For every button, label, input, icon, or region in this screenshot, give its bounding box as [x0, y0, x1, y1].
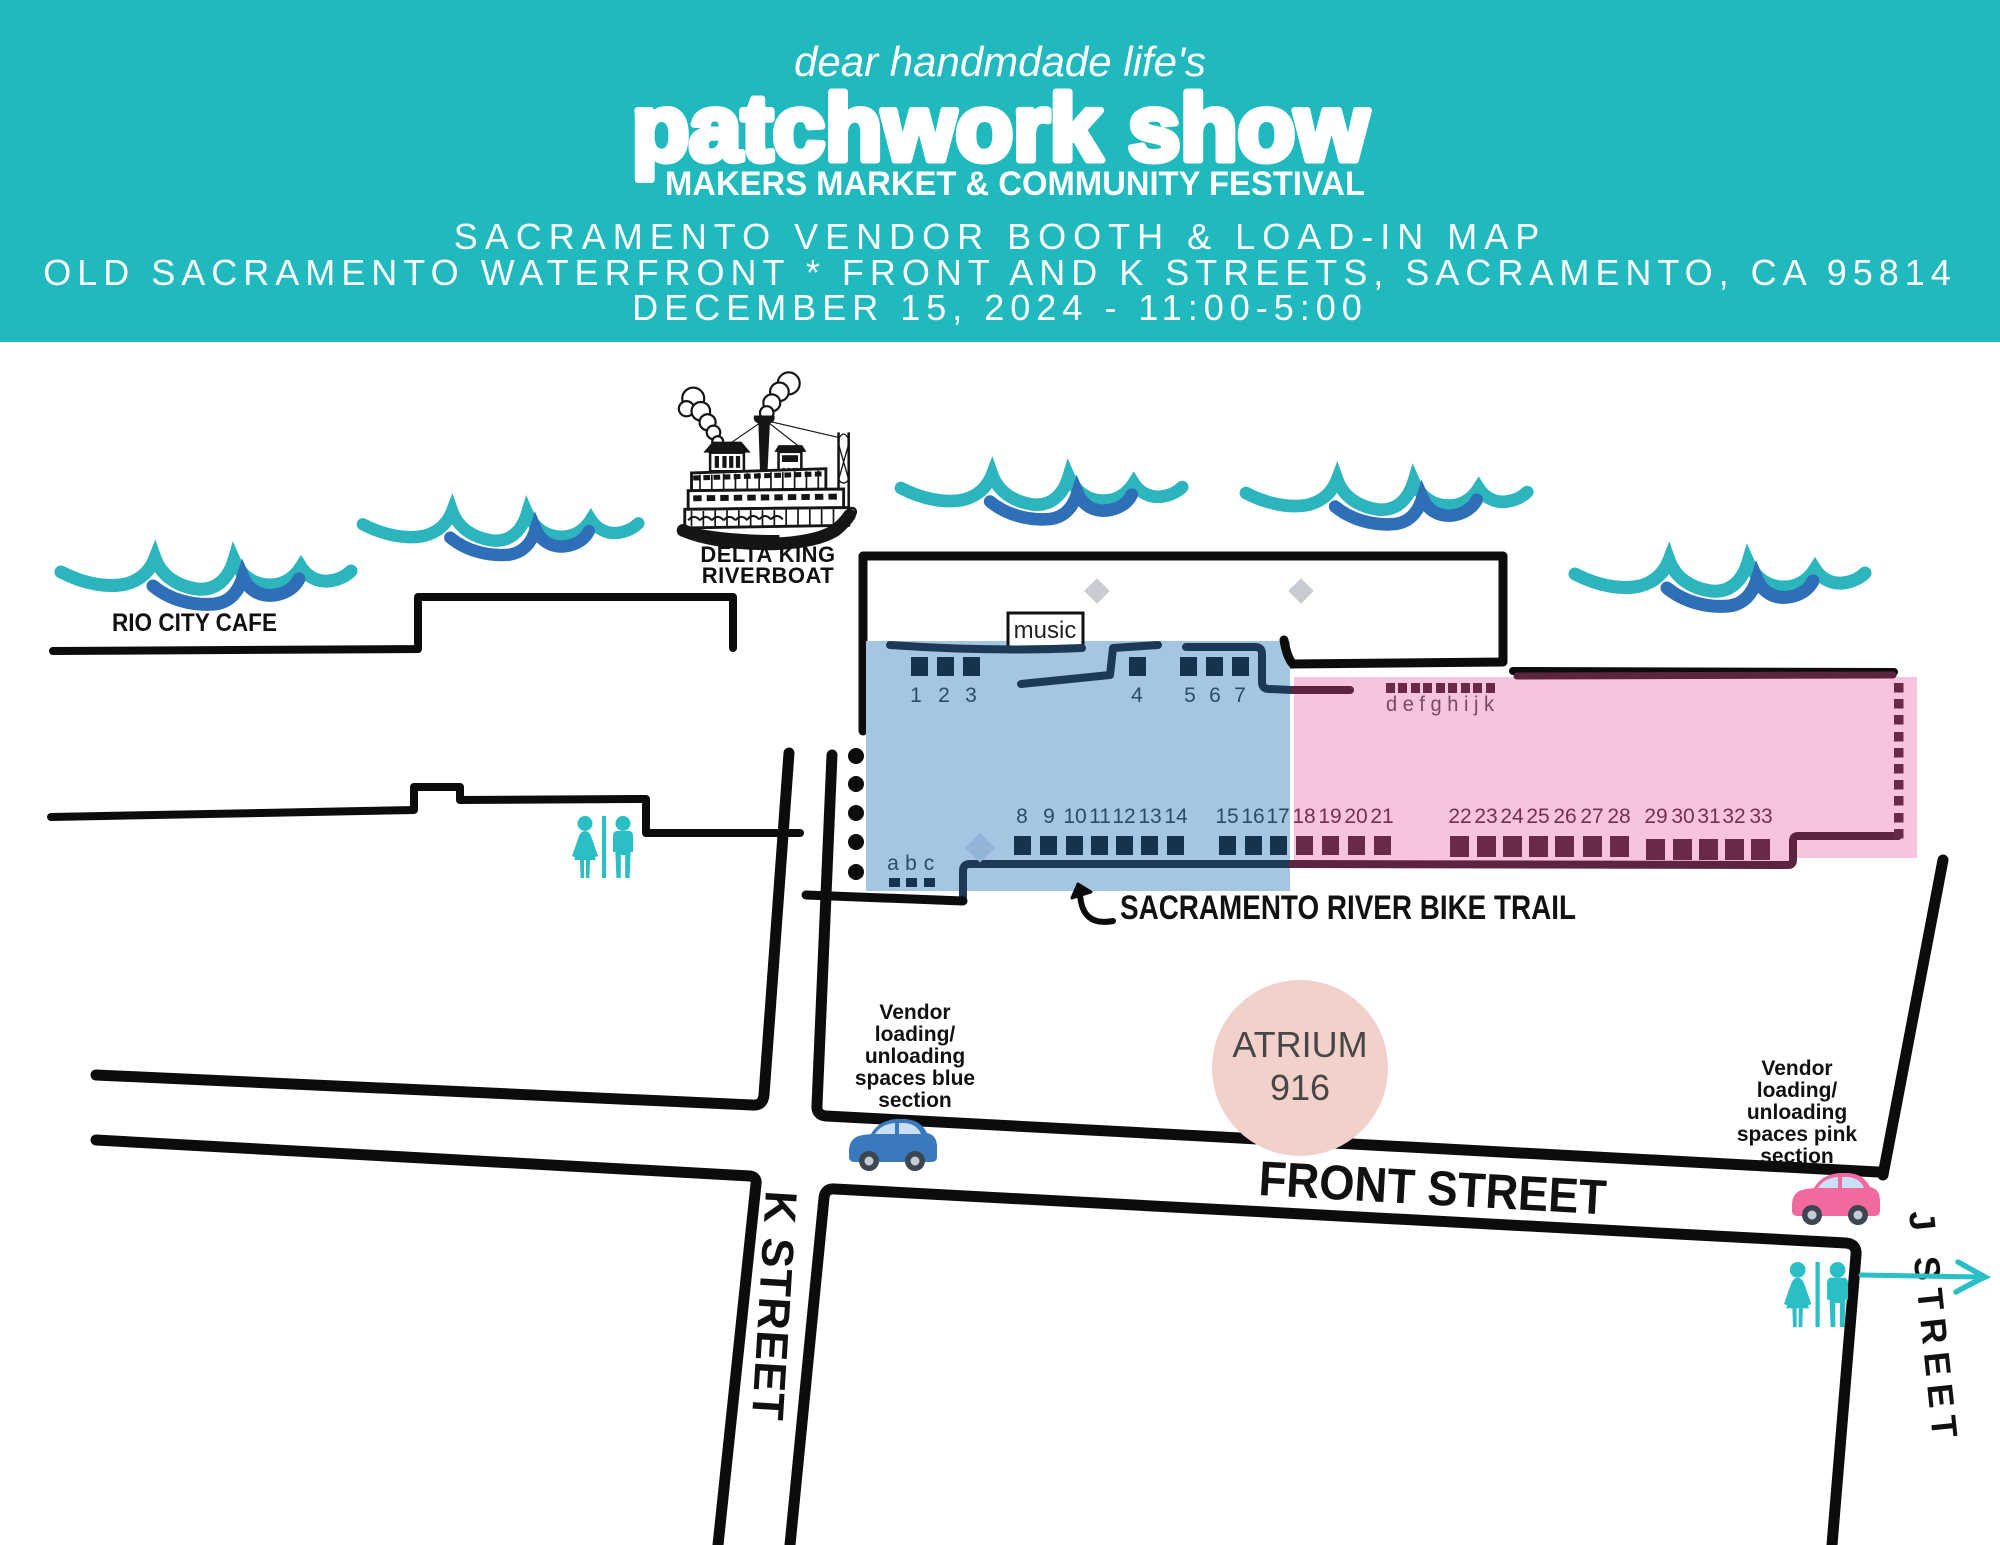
- svg-text:15: 15: [1215, 805, 1238, 828]
- svg-text:MAKERS MARKET & COMMUNITY FEST: MAKERS MARKET & COMMUNITY FESTIVAL: [665, 165, 1365, 203]
- svg-text:30: 30: [1671, 805, 1694, 828]
- svg-text:14: 14: [1164, 805, 1188, 828]
- svg-text:26: 26: [1553, 805, 1576, 828]
- svg-text:24: 24: [1500, 805, 1524, 828]
- svg-text:d e f g h i j k: d e f g h i j k: [1386, 693, 1494, 716]
- svg-text:33: 33: [1749, 805, 1772, 828]
- svg-text:4: 4: [1131, 684, 1143, 707]
- svg-text:Vendor: Vendor: [1761, 1057, 1832, 1080]
- svg-text:18: 18: [1292, 805, 1315, 828]
- svg-text:ATRIUM: ATRIUM: [1232, 1024, 1367, 1065]
- svg-text:SACRAMENTO RIVER BIKE TRAIL: SACRAMENTO RIVER BIKE TRAIL: [1120, 889, 1576, 927]
- svg-text:9: 9: [1043, 805, 1055, 828]
- svg-text:loading/: loading/: [875, 1023, 956, 1046]
- svg-text:19: 19: [1318, 805, 1341, 828]
- svg-text:Vendor: Vendor: [879, 1001, 950, 1024]
- svg-text:11: 11: [1089, 805, 1111, 828]
- svg-text:section: section: [878, 1089, 952, 1112]
- svg-text:23: 23: [1474, 805, 1497, 828]
- svg-text:a: a: [887, 852, 899, 875]
- svg-text:13: 13: [1138, 805, 1161, 828]
- svg-text:8: 8: [1016, 805, 1028, 828]
- svg-text:17: 17: [1266, 805, 1289, 828]
- svg-text:31: 31: [1697, 805, 1720, 828]
- svg-text:25: 25: [1526, 805, 1549, 828]
- svg-text:b: b: [905, 852, 917, 875]
- svg-text:12: 12: [1112, 805, 1135, 828]
- svg-text:27: 27: [1580, 805, 1603, 828]
- svg-text:unloading: unloading: [865, 1045, 965, 1068]
- svg-text:RIVERBOAT: RIVERBOAT: [702, 563, 834, 588]
- svg-text:J STREET: J STREET: [1901, 1209, 1966, 1440]
- svg-text:section: section: [1760, 1145, 1834, 1168]
- svg-text:spaces blue: spaces blue: [855, 1067, 975, 1090]
- svg-text:music: music: [1014, 617, 1077, 644]
- svg-text:20: 20: [1344, 805, 1367, 828]
- svg-text:2: 2: [938, 684, 950, 707]
- svg-text:10: 10: [1063, 805, 1086, 828]
- svg-text:28: 28: [1607, 805, 1630, 828]
- svg-text:5: 5: [1184, 684, 1196, 707]
- svg-text:21: 21: [1370, 805, 1393, 828]
- svg-text:DECEMBER 15, 2024 - 11:00-5:00: DECEMBER 15, 2024 - 11:00-5:00: [632, 287, 1368, 328]
- svg-text:3: 3: [965, 684, 977, 707]
- svg-text:c: c: [924, 852, 935, 875]
- svg-text:916: 916: [1270, 1067, 1330, 1108]
- svg-text:unloading: unloading: [1747, 1101, 1847, 1124]
- svg-text:29: 29: [1644, 805, 1667, 828]
- svg-text:7: 7: [1234, 684, 1246, 707]
- svg-text:6: 6: [1209, 684, 1221, 707]
- svg-text:32: 32: [1722, 805, 1745, 828]
- svg-text:22: 22: [1448, 805, 1471, 828]
- svg-text:loading/: loading/: [1757, 1079, 1838, 1102]
- svg-text:1: 1: [910, 684, 922, 707]
- svg-text:spaces pink: spaces pink: [1737, 1123, 1858, 1146]
- svg-text:16: 16: [1241, 805, 1264, 828]
- svg-text:SACRAMENTO VENDOR BOOTH & LOAD: SACRAMENTO VENDOR BOOTH & LOAD-IN MAP: [454, 216, 1546, 257]
- svg-text:RIO CITY CAFE: RIO CITY CAFE: [112, 609, 277, 637]
